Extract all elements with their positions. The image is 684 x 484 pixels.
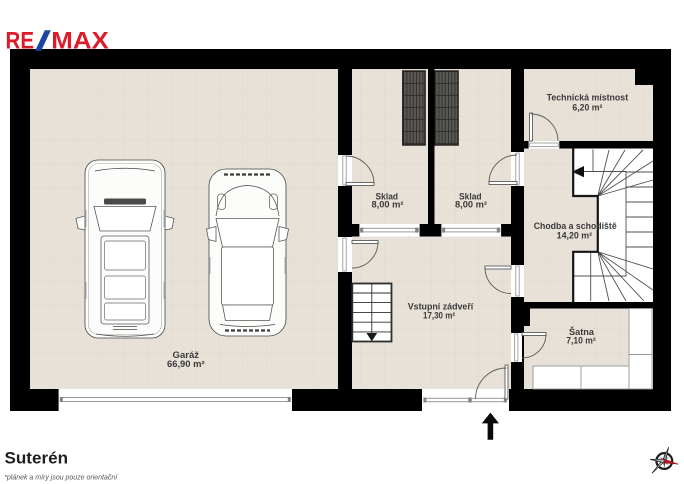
svg-text:6,20 m²: 6,20 m² <box>572 102 602 112</box>
svg-text:MAX: MAX <box>51 28 109 55</box>
svg-text:Suterén: Suterén <box>5 450 69 468</box>
svg-text:66,90 m²: 66,90 m² <box>167 359 205 369</box>
svg-text:14,20 m²: 14,20 m² <box>557 230 593 240</box>
svg-text:17,30 m²: 17,30 m² <box>423 311 455 321</box>
svg-text:Technická místnost: Technická místnost <box>547 93 629 103</box>
svg-text:*plánek a míry jsou pouze orie: *plánek a míry jsou pouze orientační <box>4 472 118 481</box>
svg-text:8,00 m²: 8,00 m² <box>372 199 404 209</box>
svg-text:7,10 m²: 7,10 m² <box>566 336 596 346</box>
svg-text:RE: RE <box>6 28 35 55</box>
svg-text:8,00 m²: 8,00 m² <box>455 199 487 209</box>
